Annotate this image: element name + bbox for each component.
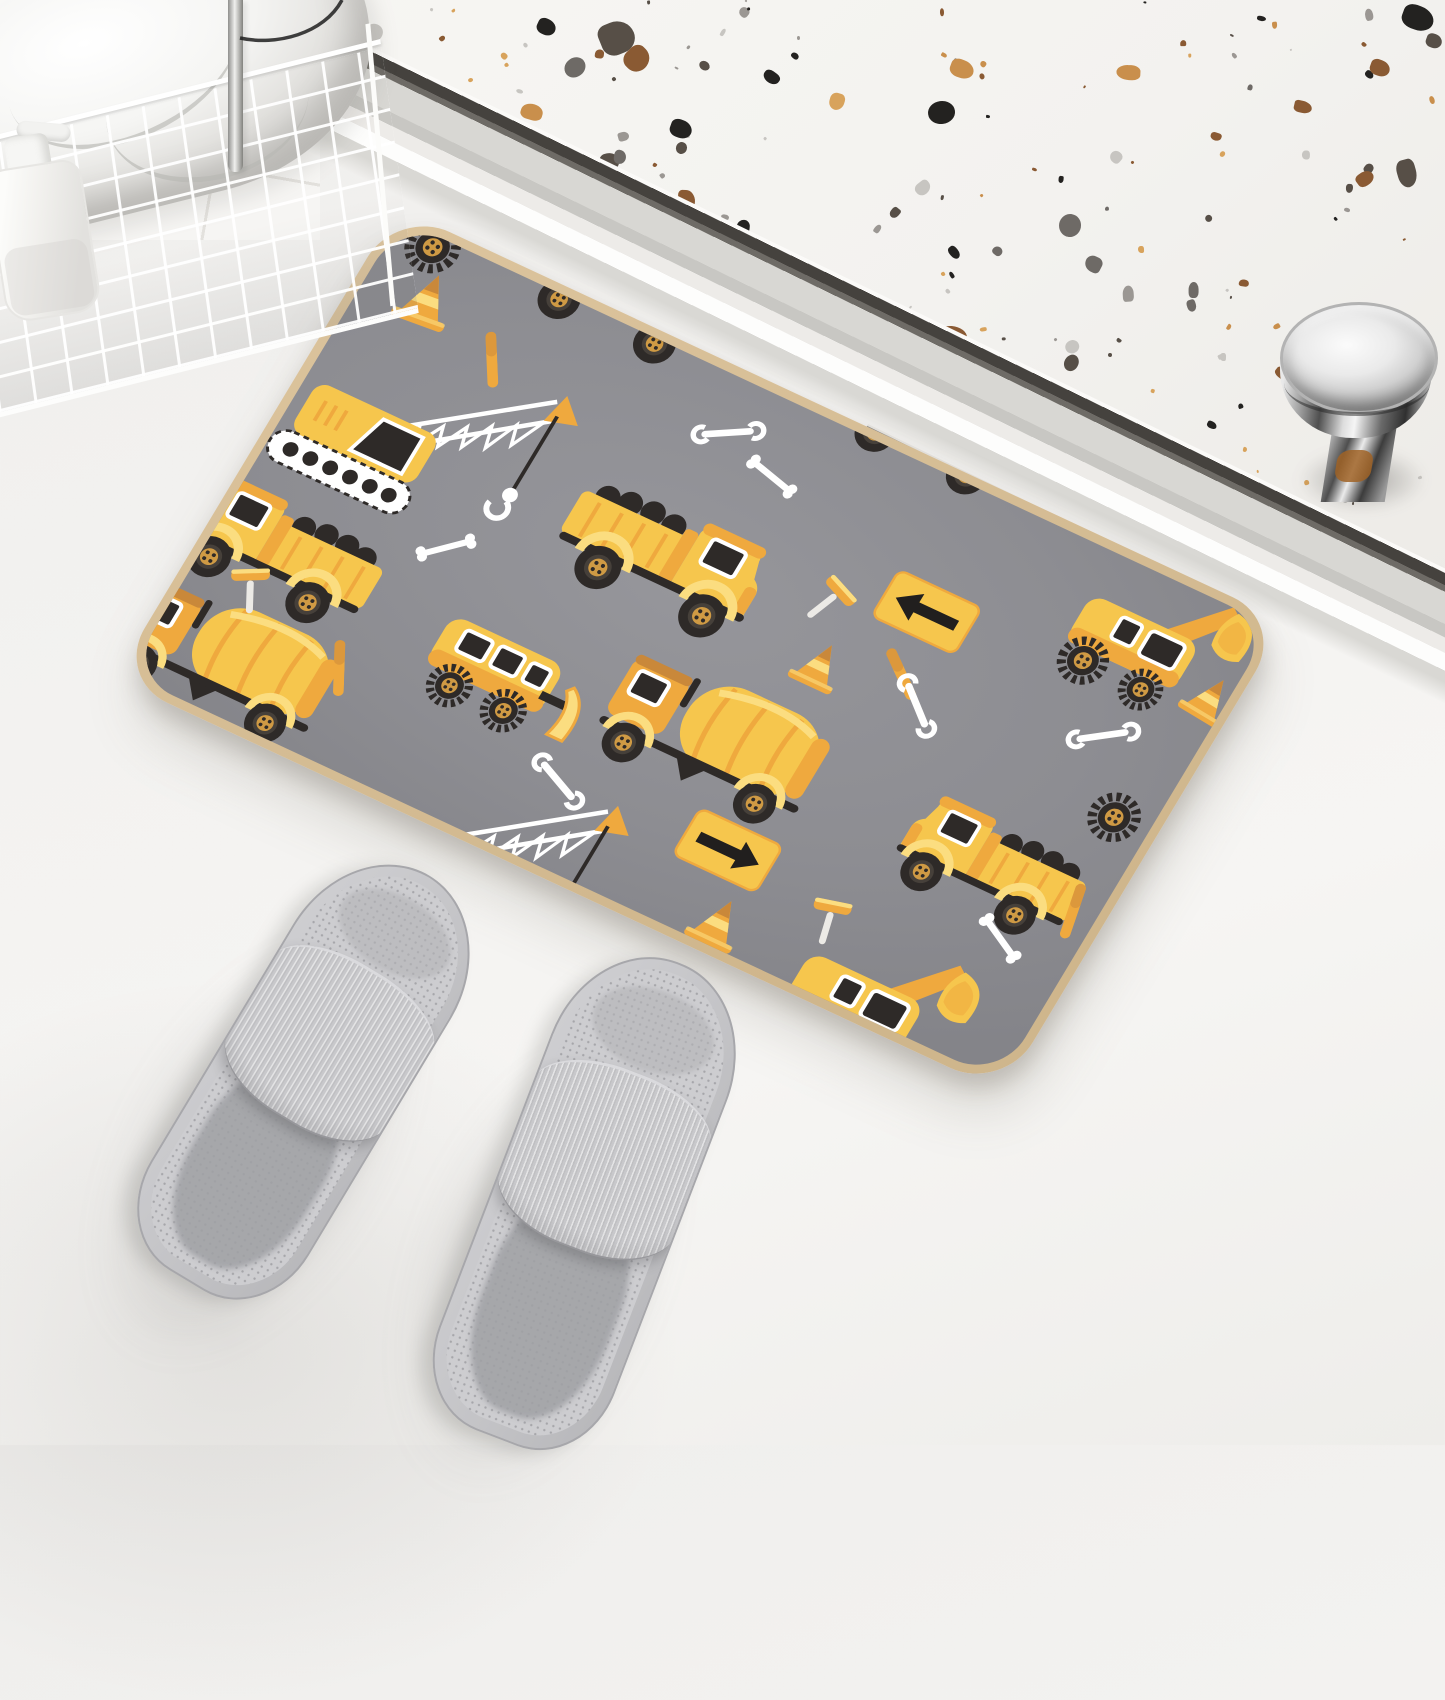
terrazzo-speckle — [1131, 160, 1135, 164]
terrazzo-speckle — [1186, 299, 1199, 313]
terrazzo-speckle — [522, 42, 528, 48]
terrazzo-speckle — [266, 362, 270, 367]
pattern-item-bone — [739, 448, 804, 504]
terrazzo-speckle — [1257, 16, 1267, 22]
terrazzo-speckle — [686, 45, 691, 50]
terrazzo-speckle — [668, 117, 695, 141]
terrazzo-speckle — [1057, 213, 1083, 240]
terrazzo-speckle — [1230, 33, 1235, 37]
terrazzo-speckle — [647, 1, 650, 5]
terrazzo-speckle — [1107, 148, 1124, 165]
terrazzo-speckle — [939, 8, 944, 16]
terrazzo-speckle — [1429, 96, 1436, 105]
basket-wire-handle — [236, 0, 348, 58]
terrazzo-speckle — [1204, 214, 1214, 224]
terrazzo-speckle — [1219, 150, 1226, 158]
terrazzo-speckle — [1143, 1, 1147, 4]
terrazzo-speckle — [827, 91, 847, 112]
pattern-item-wrench — [1064, 718, 1143, 754]
terrazzo-speckle — [1237, 403, 1243, 409]
pattern-item-stick — [331, 639, 345, 699]
terrazzo-speckle — [697, 58, 712, 72]
terrazzo-speckle — [430, 8, 434, 12]
terrazzo-speckle — [887, 206, 901, 221]
terrazzo-speckle — [790, 52, 800, 61]
terrazzo-speckle — [1105, 207, 1109, 212]
terrazzo-speckle — [1333, 217, 1338, 222]
terrazzo-speckle — [516, 88, 524, 94]
terrazzo-speckle — [1361, 41, 1368, 48]
terrazzo-speckle — [1364, 8, 1374, 22]
terrazzo-speckle — [1116, 65, 1141, 81]
terrazzo-speckle — [1138, 246, 1144, 253]
terrazzo-speckle — [979, 60, 988, 69]
terrazzo-speckle — [1083, 85, 1086, 88]
terrazzo-speckle — [1058, 177, 1064, 184]
terrazzo-speckle — [1394, 158, 1420, 190]
terrazzo-speckle — [1002, 337, 1006, 341]
terrazzo-speckle — [1219, 353, 1225, 361]
terrazzo-speckle — [980, 327, 987, 332]
terrazzo-speckle — [1346, 184, 1353, 193]
terrazzo-speckle — [926, 99, 956, 125]
terrazzo-speckle — [1082, 253, 1104, 275]
terrazzo-speckle — [945, 288, 951, 294]
terrazzo-speckle — [1226, 288, 1230, 292]
terrazzo-speckle — [946, 244, 962, 261]
terrazzo-speckle — [986, 115, 990, 119]
terrazzo-speckle — [873, 224, 882, 234]
terrazzo-speckle — [940, 272, 946, 277]
terrazzo-speckle — [500, 51, 509, 60]
terrazzo-speckle — [1032, 167, 1038, 171]
terrazzo-speckle — [504, 62, 510, 68]
terrazzo-speckle — [1290, 49, 1292, 51]
terrazzo-speckle — [764, 136, 768, 140]
terrazzo-speckle — [720, 28, 728, 37]
terrazzo-speckle — [674, 140, 688, 155]
pattern-item-wrench — [690, 418, 767, 448]
terrazzo-speckle — [560, 53, 589, 81]
terrazzo-speckle — [617, 131, 630, 142]
terrazzo-speckle — [1054, 338, 1058, 342]
pattern-item-cone — [782, 631, 858, 700]
terrazzo-speckle — [1272, 21, 1278, 29]
terrazzo-speckle — [948, 271, 956, 279]
terrazzo-speckle — [1180, 40, 1186, 46]
terrazzo-speckle — [535, 15, 559, 37]
terrazzo-speckle — [1238, 279, 1249, 288]
terrazzo-speckle — [1293, 99, 1313, 114]
terrazzo-speckle — [1063, 339, 1081, 356]
pattern-item-hammer — [222, 563, 278, 617]
terrazzo-speckle — [273, 369, 279, 375]
terrazzo-speckle — [1189, 282, 1200, 298]
terrazzo-speckle — [438, 35, 446, 43]
terrazzo-speckle — [451, 9, 456, 14]
terrazzo-speckle — [1061, 352, 1081, 373]
terrazzo-speckle — [1343, 207, 1350, 212]
chrome-knob — [1272, 298, 1444, 538]
terrazzo-speckle — [797, 36, 800, 40]
terrazzo-speckle — [659, 172, 666, 179]
knob-seam — [1284, 350, 1430, 416]
terrazzo-speckle — [1206, 420, 1218, 430]
terrazzo-speckle — [1230, 52, 1238, 60]
terrazzo-speckle — [1399, 1, 1437, 34]
terrazzo-speckle — [747, 7, 750, 10]
pattern-item-excav — [744, 894, 1007, 1081]
pattern-item-hammer — [789, 565, 868, 637]
terrazzo-speckle — [1247, 84, 1253, 91]
terrazzo-speckle — [913, 177, 934, 197]
terrazzo-speckle — [761, 67, 781, 86]
terrazzo-speckle — [519, 101, 545, 122]
terrazzo-speckle — [1151, 389, 1156, 394]
terrazzo-speckle — [940, 195, 944, 200]
terrazzo-speckle — [979, 194, 983, 198]
terrazzo-speckle — [467, 77, 473, 82]
terrazzo-speckle — [611, 76, 617, 82]
terrazzo-speckle — [674, 66, 678, 69]
terrazzo-speckle — [1354, 168, 1377, 190]
terrazzo-speckle — [1243, 447, 1248, 453]
terrazzo-speckle — [1230, 296, 1233, 299]
terrazzo-speckle — [1122, 285, 1134, 302]
terrazzo-speckle — [744, 0, 747, 3]
terrazzo-speckle — [1116, 337, 1122, 343]
pattern-item-sign — [865, 564, 987, 662]
terrazzo-speckle — [652, 162, 657, 167]
terrazzo-speckle — [1226, 324, 1232, 331]
terrazzo-speckle — [613, 149, 627, 164]
terrazzo-speckle — [941, 52, 948, 59]
terrazzo-speckle — [1302, 150, 1310, 160]
terrazzo-speckle — [991, 244, 1005, 257]
terrazzo-speckle — [948, 56, 977, 81]
terrazzo-speckle — [1403, 237, 1407, 240]
terrazzo-speckle — [1424, 32, 1444, 51]
terrazzo-speckle — [1256, 469, 1259, 473]
terrazzo-speckle — [1188, 54, 1191, 58]
pattern-item-wrench — [891, 668, 943, 743]
terrazzo-speckle — [979, 72, 985, 79]
terrazzo-speckle — [1209, 131, 1222, 142]
terrazzo-speckle — [1108, 353, 1112, 357]
